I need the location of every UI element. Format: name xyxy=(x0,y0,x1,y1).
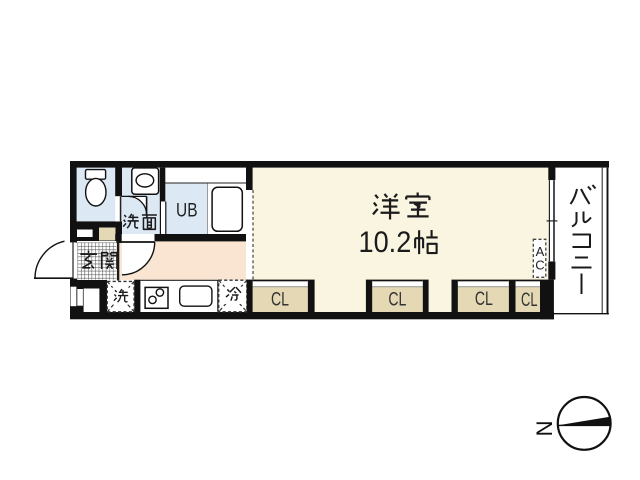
svg-text:C: C xyxy=(535,258,544,273)
svg-text:CL: CL xyxy=(475,289,493,310)
svg-text:UB: UB xyxy=(176,200,198,221)
svg-text:CL: CL xyxy=(271,290,289,311)
svg-text:10.2: 10.2 xyxy=(359,226,412,259)
svg-text:CL: CL xyxy=(388,289,406,310)
svg-text:N: N xyxy=(532,421,557,437)
svg-text:CL: CL xyxy=(521,290,538,311)
